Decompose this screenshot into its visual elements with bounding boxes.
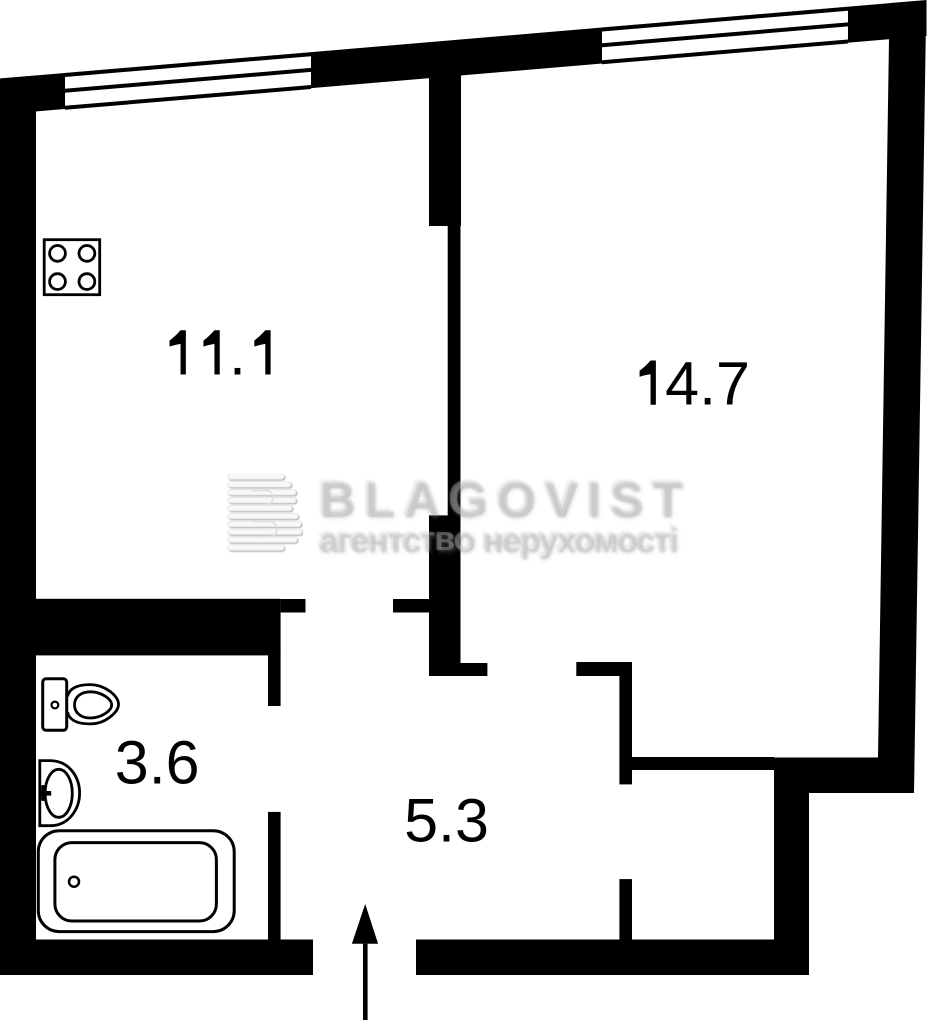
svg-text:.: .: [229, 320, 246, 388]
svg-text:5.3: 5.3: [404, 787, 489, 855]
svg-text:3.6: 3.6: [115, 728, 200, 796]
svg-text:4.7: 4.7: [665, 350, 750, 418]
